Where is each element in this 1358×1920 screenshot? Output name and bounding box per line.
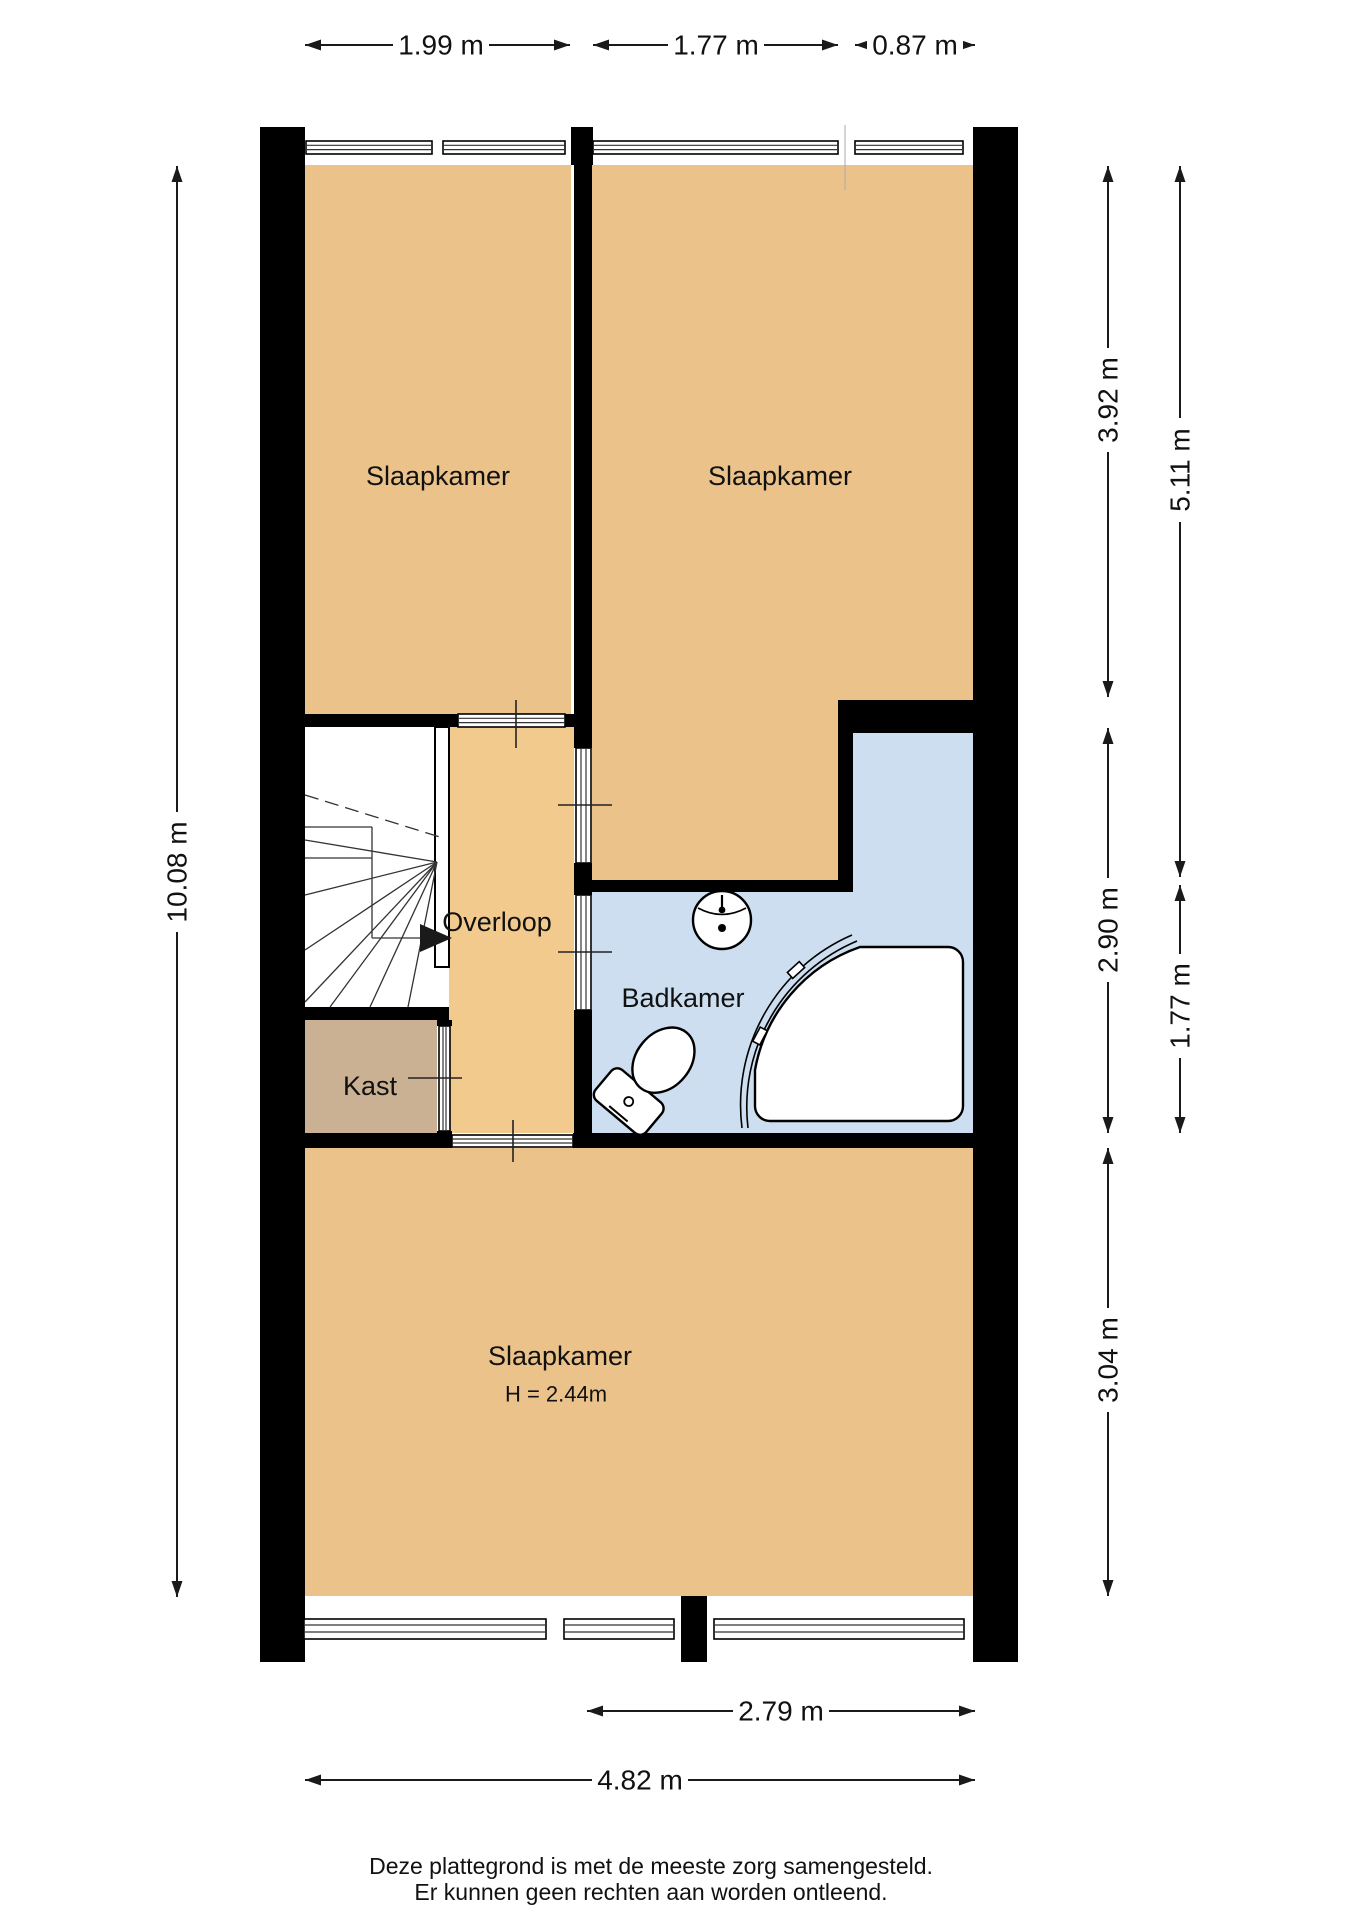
window-top-1-icon [306,141,432,154]
dimension-label: 3.04 m [1093,1317,1124,1403]
stairwell-floor [305,727,449,1007]
window-bottom-3-icon [714,1619,964,1639]
room-height-note: H = 2.44m [505,1382,607,1407]
dimension-label: 10.08 m [162,821,193,922]
dimension-bottom-1: 2.79 m [587,1694,975,1728]
window-top-3-icon [593,141,838,154]
room-slaapkamer-links-floor [305,165,571,714]
sink-tap-dot [719,907,726,914]
room-label-slaapkamer-rechts: Slaapkamer [708,461,852,491]
sink-icon [693,891,751,949]
window-top-2-icon [443,141,565,154]
wall-right-exterior [973,127,1018,1662]
wall-bathroom-bottom [573,1133,973,1148]
disclaimer-line-2: Er kunnen geen rechten aan worden ontlee… [414,1879,887,1905]
dimension-label: 4.82 m [597,1765,683,1796]
wall-left-exterior [260,127,305,1662]
dimension-label: 5.11 m [1165,428,1196,512]
wall-top-divider-chunk [571,127,593,165]
dimension-label: 1.99 m [398,30,484,61]
wall-bottom-window-pier [681,1596,707,1662]
wall-bathroom-top [838,700,973,733]
dimension-right-1: 3.92 m [1091,166,1125,697]
wall-stairwell-bottom [305,1007,449,1020]
floorplan-drawing: Slaapkamer Slaapkamer Overloop Badkamer … [0,0,1358,1920]
dimension-label: 0.87 m [872,30,958,61]
dimension-label: 1.77 m [1165,963,1196,1049]
wall-hall-bottom-left [260,1133,452,1148]
dimension-label: 3.92 m [1093,357,1124,443]
wall-divider-segment [574,1010,592,1133]
room-label-kast: Kast [343,1071,398,1101]
wall-kast-door-cap-top [437,1020,452,1026]
dimension-right-5: 3.04 m [1091,1148,1125,1596]
floorplan-page: Slaapkamer Slaapkamer Overloop Badkamer … [0,0,1358,1920]
wall-bedroom1-bottom-cap [565,714,574,727]
dimension-top-3: 0.87 m [855,28,975,62]
dimension-left-1: 10.08 m [160,166,194,1597]
room-label-slaapkamer-links: Slaapkamer [366,461,510,491]
footer-disclaimer: Deze plattegrond is met de meeste zorg s… [369,1853,933,1905]
room-label-overloop: Overloop [442,907,552,937]
sink-drain-dot [718,924,726,932]
room-slaapkamer-onder-floor [305,1148,973,1596]
dimension-top-1: 1.99 m [305,28,570,62]
window-bottom-1-icon [304,1619,546,1639]
dimension-label: 2.79 m [738,1696,824,1727]
wall-divider-segment [574,714,592,748]
room-label-slaapkamer-onder: Slaapkamer [488,1341,632,1371]
dimension-right-2: 5.11 m [1163,166,1197,877]
dimension-right-4: 1.77 m [1163,885,1197,1133]
window-bottom-2-icon [564,1619,674,1639]
dimension-top-2: 1.77 m [593,28,838,62]
wall-bedroom1-bottom [305,714,458,727]
dimension-right-3: 2.90 m [1091,728,1125,1133]
dimension-bottom-2: 4.82 m [305,1763,975,1797]
dimension-label: 1.77 m [673,30,759,61]
wall-divider-bedrooms [574,165,592,714]
disclaimer-line-1: Deze plattegrond is met de meeste zorg s… [369,1853,933,1879]
wall-divider-segment [574,863,592,895]
dimension-label: 2.90 m [1093,887,1124,973]
room-label-badkamer: Badkamer [621,983,744,1013]
window-top-4-icon [855,141,963,154]
